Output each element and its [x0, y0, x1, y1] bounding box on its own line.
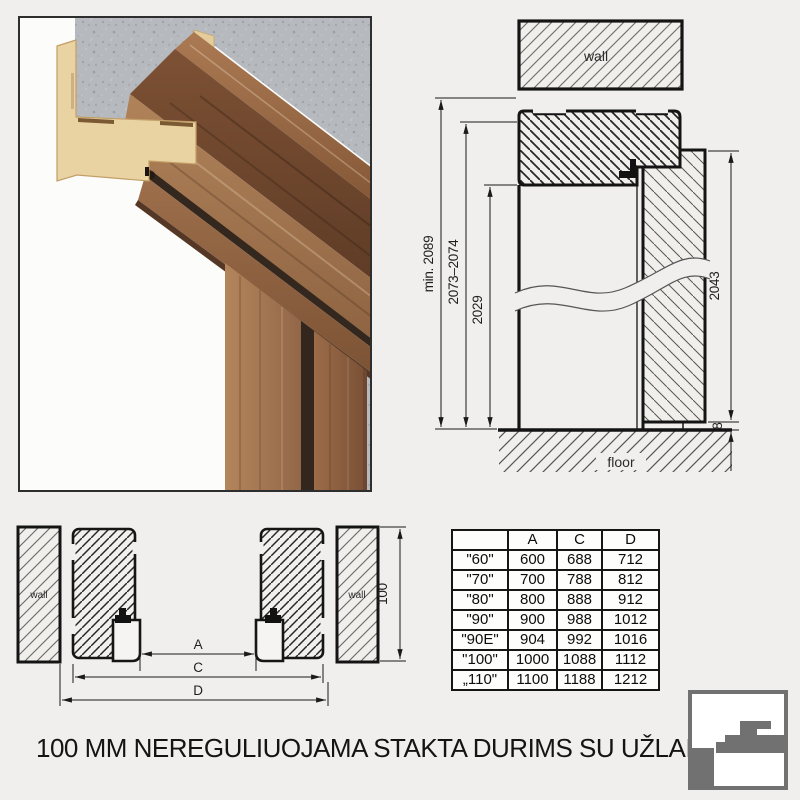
- dim-door-height: 2043: [707, 272, 722, 301]
- table-cell: 788: [557, 570, 602, 590]
- rebate-right: [256, 620, 283, 661]
- table-cell: 800: [508, 590, 557, 610]
- table-cell: 1212: [602, 670, 659, 690]
- table-header-size: [452, 530, 508, 550]
- table-cell: 1088: [557, 650, 602, 670]
- dim-floor-gap: 8: [710, 422, 725, 429]
- head-seal: [630, 159, 636, 171]
- dim-c-label: C: [193, 660, 203, 675]
- size-table: A C D "60"600688712"70"700788812"80"8008…: [451, 529, 660, 691]
- dim-clear-height: 2029: [470, 296, 485, 325]
- table-cell: "60": [452, 550, 508, 570]
- table-cell: 1100: [508, 670, 557, 690]
- table-row: "80"800888912: [452, 590, 659, 610]
- dim-d-label: D: [193, 683, 203, 698]
- table-cell: 912: [602, 590, 659, 610]
- horizontal-section-drawing: wall wall A C D 100: [10, 520, 430, 710]
- table-cell: 900: [508, 610, 557, 630]
- table-cell: "90": [452, 610, 508, 630]
- table-row: "100"100010881112: [452, 650, 659, 670]
- table-row: "60"600688712: [452, 550, 659, 570]
- rebate-left: [113, 620, 140, 661]
- wall-left-label: wall: [29, 590, 47, 601]
- table-cell: 992: [557, 630, 602, 650]
- floor-label: floor: [607, 454, 635, 470]
- table-cell: 600: [508, 550, 557, 570]
- table-cell: "90E": [452, 630, 508, 650]
- table-cell: 888: [557, 590, 602, 610]
- frame-corner-render: [20, 18, 370, 490]
- table-cell: 1112: [602, 650, 659, 670]
- table-cell: 1000: [508, 650, 557, 670]
- table-cell: 904: [508, 630, 557, 650]
- dim-opening-min: min. 2089: [421, 236, 436, 293]
- head-seal: [619, 171, 637, 178]
- table-cell: 988: [557, 610, 602, 630]
- table-cell: 812: [602, 570, 659, 590]
- dim-frame-height: 2073–2074: [446, 239, 461, 305]
- table-row: "70"700788812: [452, 570, 659, 590]
- dim-a-label: A: [194, 637, 203, 652]
- table-row: "90"9009881012: [452, 610, 659, 630]
- table-header-d: D: [602, 530, 659, 550]
- table-cell: 700: [508, 570, 557, 590]
- table-cell: 1016: [602, 630, 659, 650]
- vertical-section-drawing: wall floor: [420, 10, 792, 488]
- frame-profile-left: [71, 529, 141, 661]
- frame-corner-photo: [18, 16, 372, 492]
- seal-left: [119, 608, 126, 617]
- wall-label: wall: [583, 48, 608, 64]
- table-cell: 712: [602, 550, 659, 570]
- table-cell: 1188: [557, 670, 602, 690]
- table-cell: "100": [452, 650, 508, 670]
- table-row: "90E"9049921016: [452, 630, 659, 650]
- table-cell: 1012: [602, 610, 659, 630]
- leg-seal-groove: [301, 321, 314, 490]
- floor: floor: [498, 430, 732, 472]
- table-header-c: C: [557, 530, 602, 550]
- table-cell: "70": [452, 570, 508, 590]
- table-cell: 688: [557, 550, 602, 570]
- frame-profile-right: [256, 529, 326, 661]
- seal-anchor: [145, 167, 149, 176]
- table-cell: "80": [452, 590, 508, 610]
- seal-right: [270, 608, 277, 617]
- table-header-row: A C D: [452, 530, 659, 550]
- wall-right-label: wall: [347, 590, 365, 601]
- table-header-a: A: [508, 530, 557, 550]
- table-cell: „110": [452, 670, 508, 690]
- dim-frame-depth: 100: [375, 583, 390, 605]
- table-row: „110"110011881212: [452, 670, 659, 690]
- brand-logo-icon: [688, 690, 788, 790]
- page-title: 100 MM NEREGULIUOJAMA STAKTA DURIMS SU U…: [36, 733, 736, 764]
